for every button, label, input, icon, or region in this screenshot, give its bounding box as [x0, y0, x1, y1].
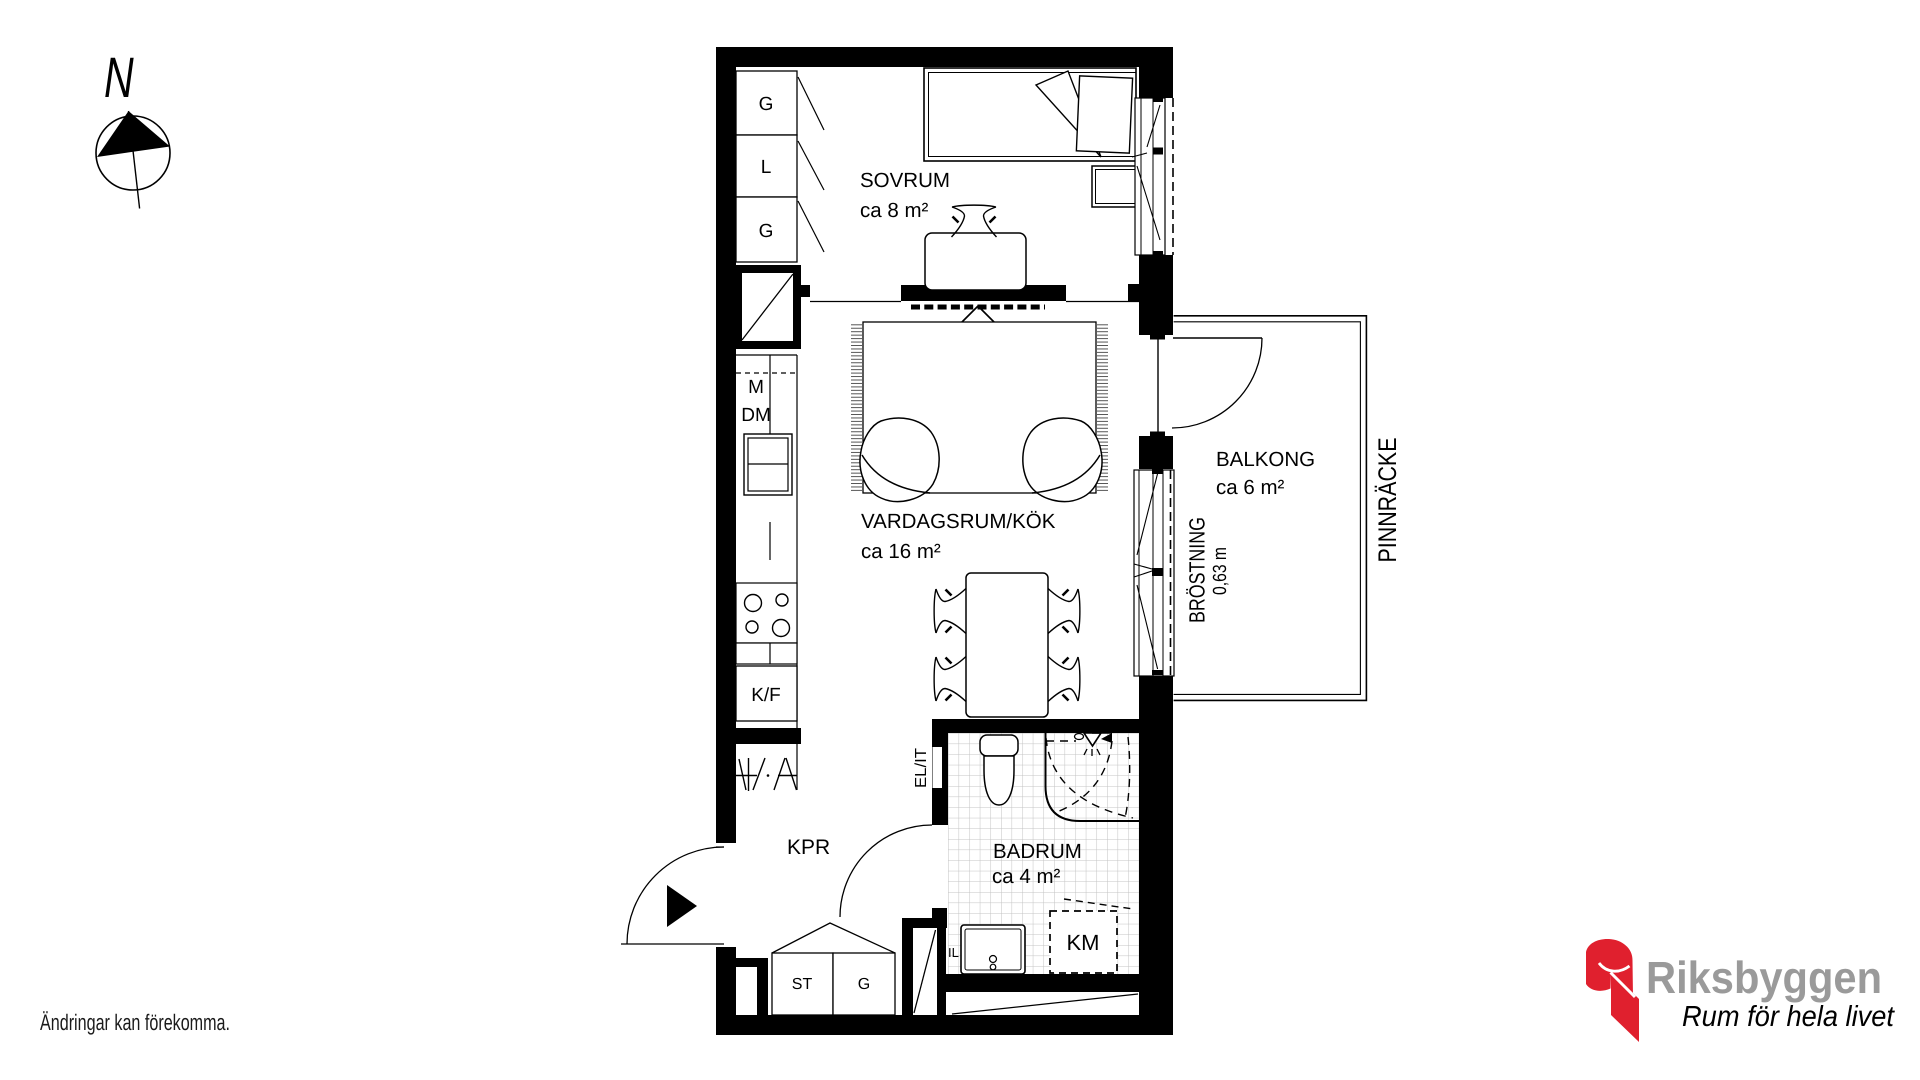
svg-text:K/F: K/F [751, 685, 781, 706]
svg-text:ca 8 m²: ca 8 m² [860, 199, 929, 222]
svg-text:BRÖSTNING: BRÖSTNING [1185, 517, 1210, 623]
svg-text:Riksbyggen: Riksbyggen [1646, 952, 1882, 1003]
svg-text:ca 16 m²: ca 16 m² [861, 540, 941, 563]
svg-text:Ändringar kan förekomma.: Ändringar kan förekomma. [40, 1010, 230, 1035]
svg-text:M: M [748, 377, 764, 398]
svg-text:EL/IT: EL/IT [913, 748, 930, 788]
svg-text:BALKONG: BALKONG [1216, 448, 1315, 471]
svg-text:KPR: KPR [787, 836, 830, 859]
svg-text:G: G [759, 94, 774, 115]
svg-text:G: G [858, 976, 870, 993]
svg-text:Rum för hela livet: Rum för hela livet [1682, 1001, 1896, 1033]
svg-text:BADRUM: BADRUM [993, 840, 1082, 863]
svg-text:ca 4 m²: ca 4 m² [992, 865, 1061, 888]
svg-text:G: G [759, 221, 774, 242]
svg-text:IL: IL [948, 945, 959, 960]
svg-text:PINNRÄCKE: PINNRÄCKE [1374, 438, 1402, 563]
svg-text:ca 6 m²: ca 6 m² [1216, 476, 1285, 499]
svg-text:0,63 m: 0,63 m [1210, 547, 1231, 595]
svg-text:VARDAGSRUM/KÖK: VARDAGSRUM/KÖK [861, 510, 1056, 533]
svg-text:L: L [761, 157, 772, 178]
svg-text:KM: KM [1067, 930, 1100, 955]
svg-text:N: N [104, 46, 134, 110]
svg-text:DM: DM [741, 405, 771, 426]
svg-text:ST: ST [792, 976, 813, 993]
svg-text:SOVRUM: SOVRUM [860, 169, 950, 192]
